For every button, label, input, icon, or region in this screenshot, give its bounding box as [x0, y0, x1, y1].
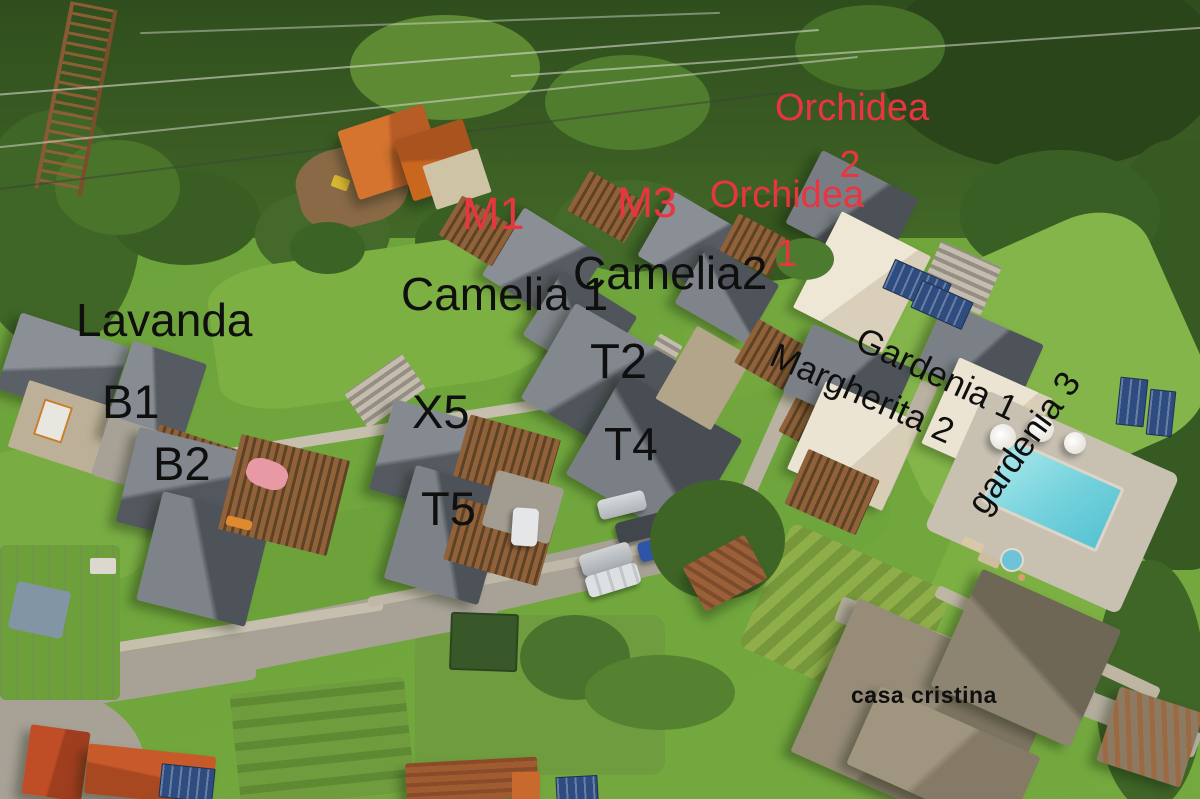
small-white-structure [90, 558, 116, 574]
house-roof-orange-bc [512, 772, 540, 799]
label-m3: M3 [617, 181, 677, 226]
tree-canopy [350, 15, 540, 120]
label-casa-cristina: casa cristina [851, 683, 997, 707]
label-b1: B1 [102, 377, 160, 426]
kiddie-pool [1000, 548, 1024, 572]
car-white-carport [511, 507, 540, 547]
label-m1: M1 [462, 190, 525, 237]
label-t4: T4 [604, 420, 658, 468]
aerial-photo: Lavanda B1 B2 X5 T5 T2 T4 Camelia 1 Came… [0, 0, 1200, 799]
garden-terraces [229, 676, 415, 799]
label-orchidea-1: Orchidea 1 [706, 166, 868, 284]
label-x5: X5 [412, 387, 470, 436]
tree-canopy [290, 222, 365, 274]
solar-panel-roof [555, 775, 598, 799]
solar-panel-slope [1116, 377, 1149, 428]
label-lavanda: Lavanda [76, 296, 253, 344]
bushes [585, 655, 735, 730]
garden-shed-green [449, 612, 519, 672]
house-roof-orange-bl [21, 724, 90, 799]
label-t5: T5 [421, 484, 476, 533]
label-b2: B2 [153, 439, 211, 488]
solar-panel-roof [158, 763, 215, 799]
pool-umbrella [1064, 432, 1086, 454]
label-t2: T2 [590, 337, 647, 388]
person [1018, 574, 1025, 581]
tree-canopy [545, 55, 710, 150]
solar-panel-slope [1146, 389, 1177, 437]
